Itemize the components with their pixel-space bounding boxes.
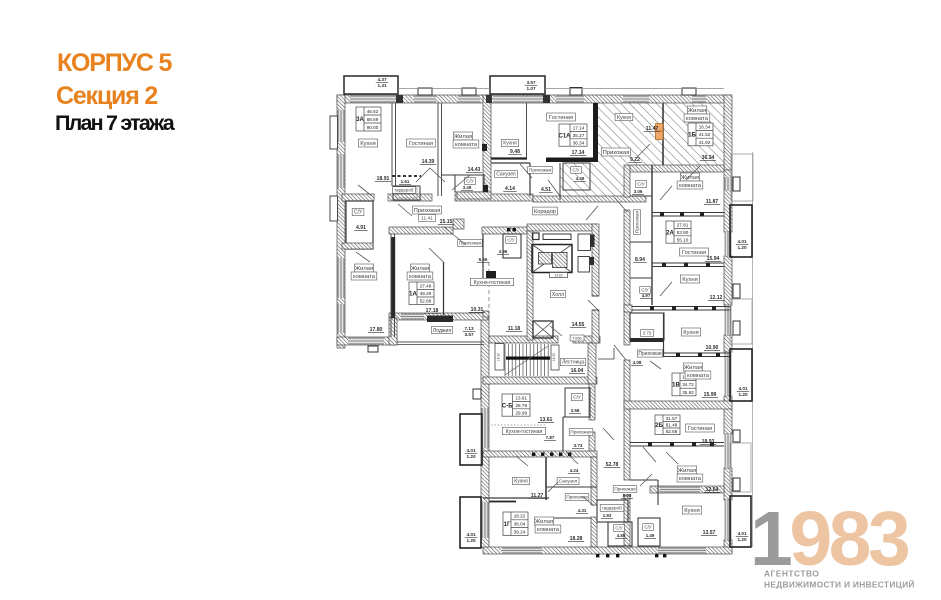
svg-text:НЕДВИЖИМОСТИ И ИНВЕСТИЦИЙ: НЕДВИЖИМОСТИ И ИНВЕСТИЦИЙ (764, 579, 915, 590)
svg-text:Жилая: Жилая (411, 266, 429, 272)
svg-text:комната: комната (537, 527, 560, 533)
svg-text:52.86: 52.86 (420, 299, 432, 304)
svg-text:4.49: 4.49 (576, 176, 585, 181)
svg-text:3А: 3А (356, 117, 364, 123)
svg-text:С/У: С/У (637, 182, 645, 187)
svg-text:Кухня: Кухня (684, 508, 700, 514)
svg-text:29.99: 29.99 (516, 410, 528, 415)
svg-text:1.20: 1.20 (466, 538, 476, 543)
svg-text:Секция 2: Секция 2 (56, 82, 157, 110)
svg-text:16.34: 16.34 (699, 125, 711, 130)
svg-text:комната: комната (686, 116, 709, 122)
svg-text:Коридор: Коридор (534, 209, 556, 215)
svg-text:17.14: 17.14 (573, 126, 585, 131)
svg-text:КОРПУС 5: КОРПУС 5 (57, 49, 172, 77)
svg-text:Кухня: Кухня (617, 115, 631, 121)
svg-text:3.96: 3.96 (499, 249, 508, 254)
svg-text:1.49: 1.49 (646, 533, 655, 538)
svg-text:С/У: С/У (573, 395, 582, 401)
svg-text:Кухня: Кухня (683, 330, 699, 336)
svg-text:Кухня: Кухня (503, 141, 517, 147)
svg-text:Гостиная: Гостиная (688, 426, 712, 432)
svg-text:Санузел: Санузел (496, 172, 516, 178)
svg-text:4.89: 4.89 (617, 533, 626, 538)
svg-text:4.01: 4.01 (737, 239, 747, 244)
svg-text:Прихожая: Прихожая (603, 150, 630, 156)
svg-text:комната: комната (455, 142, 478, 148)
svg-text:53.90: 53.90 (677, 230, 689, 235)
svg-text:Кухня-гостиная: Кухня-гостиная (474, 280, 511, 286)
svg-text:1.31: 1.31 (377, 83, 387, 88)
svg-text:3.75: 3.75 (643, 330, 652, 335)
svg-text:27.81: 27.81 (677, 223, 689, 228)
svg-text:1.20: 1.20 (738, 392, 748, 397)
svg-text:2Б: 2Б (655, 423, 663, 429)
svg-text:35.92: 35.92 (682, 390, 694, 395)
svg-text:Гостиная: Гостиная (549, 115, 573, 121)
svg-text:С/У: С/У (641, 287, 648, 292)
svg-text:38.04: 38.04 (514, 522, 526, 527)
svg-text:Санузел: Санузел (559, 479, 578, 485)
svg-text:1.20: 1.20 (466, 454, 476, 459)
svg-text:1В: 1В (672, 383, 680, 389)
svg-text:С/У: С/У (572, 167, 579, 172)
svg-text:Жилая: Жилая (355, 266, 373, 272)
svg-text:3.58: 3.58 (571, 408, 580, 413)
svg-text:6.66: 6.66 (479, 257, 488, 262)
svg-text:С/У: С/У (507, 237, 514, 242)
svg-text:41.52: 41.52 (699, 132, 711, 137)
svg-text:1.93: 1.93 (603, 513, 612, 518)
svg-text:62.68: 62.68 (666, 429, 678, 434)
svg-text:Холл: Холл (552, 292, 564, 298)
svg-text:1Б: 1Б (688, 133, 696, 139)
svg-text:4.01: 4.01 (737, 531, 747, 536)
svg-text:Кухня: Кухня (360, 141, 376, 147)
svg-text:Жилая: Жилая (535, 519, 553, 525)
svg-text:С/У: С/У (615, 525, 622, 530)
svg-text:Лестница: Лестница (562, 360, 584, 366)
svg-text:4.08: 4.08 (633, 360, 642, 365)
svg-text:3.57: 3.57 (526, 80, 536, 85)
svg-text:комната: комната (353, 274, 376, 280)
svg-text:Жилая: Жилая (688, 108, 706, 114)
svg-text:С1А: С1А (558, 133, 571, 139)
svg-text:8.03: 8.03 (623, 493, 632, 498)
svg-text:1А: 1А (409, 291, 417, 297)
svg-text:Прихожая: Прихожая (635, 210, 641, 233)
svg-text:комната: комната (687, 373, 710, 379)
svg-text:39.24: 39.24 (514, 529, 526, 534)
svg-text:комната: комната (679, 183, 702, 189)
svg-text:комната: комната (409, 274, 432, 280)
svg-text:1.07: 1.07 (526, 86, 536, 91)
svg-text:С-Б: С-Б (502, 403, 513, 409)
svg-text:14.30: 14.30 (552, 353, 556, 362)
svg-text:46.62: 46.62 (367, 109, 379, 114)
svg-text:Кухня: Кухня (682, 277, 698, 283)
svg-text:АГЕНТСТВО: АГЕНТСТВО (764, 569, 819, 579)
svg-text:35.27: 35.27 (573, 133, 585, 138)
svg-text:Жилая: Жилая (684, 365, 702, 371)
svg-text:3.06: 3.06 (634, 189, 643, 194)
svg-text:55.10: 55.10 (677, 237, 689, 242)
svg-text:Прихожая: Прихожая (638, 351, 661, 357)
svg-text:14.60: 14.60 (555, 273, 563, 277)
svg-text:Кухня: Кухня (514, 479, 528, 485)
svg-text:Лоджия: Лоджия (433, 328, 452, 334)
svg-text:27.49: 27.49 (420, 284, 432, 289)
svg-text:1.61: 1.61 (401, 179, 410, 184)
svg-text:Прихожая: Прихожая (570, 430, 592, 435)
svg-text:Жилая: Жилая (678, 468, 696, 474)
svg-text:90.00: 90.00 (367, 125, 379, 130)
svg-text:С/У: С/У (354, 210, 363, 216)
svg-text:гардероб: гардероб (395, 187, 414, 192)
svg-text:Т.06Б: Т.06Б (572, 336, 582, 340)
svg-text:4.01: 4.01 (738, 386, 748, 391)
svg-text:План 7 этажа: План 7 этажа (55, 111, 176, 135)
svg-text:Прихожая: Прихожая (614, 487, 636, 492)
svg-text:Прихожая: Прихожая (414, 208, 441, 214)
svg-text:С/У: С/У (466, 179, 474, 184)
svg-text:4.31: 4.31 (578, 508, 587, 513)
svg-text:61.48: 61.48 (666, 423, 678, 428)
svg-text:3.73: 3.73 (574, 443, 583, 448)
svg-text:Гостиная: Гостиная (682, 250, 706, 256)
svg-text:Прихожая: Прихожая (529, 168, 552, 174)
svg-text:4.37: 4.37 (377, 77, 387, 82)
svg-text:1Г: 1Г (504, 522, 511, 528)
svg-text:7.87: 7.87 (546, 435, 555, 440)
svg-text:4.97: 4.97 (642, 293, 651, 298)
svg-text:41.92: 41.92 (699, 140, 711, 145)
svg-text:3.49: 3.49 (463, 185, 472, 190)
svg-text:3.57: 3.57 (464, 332, 474, 337)
svg-text:36.34: 36.34 (573, 140, 585, 145)
svg-text:Гостиная: Гостиная (409, 141, 433, 147)
svg-text:Жилая: Жилая (454, 134, 472, 140)
svg-text:88.69: 88.69 (367, 117, 379, 122)
svg-text:4.01: 4.01 (466, 448, 476, 453)
svg-text:31.57: 31.57 (666, 416, 678, 421)
svg-text:2А: 2А (666, 230, 674, 236)
svg-text:7.13: 7.13 (464, 326, 474, 331)
svg-text:комната: комната (679, 476, 702, 482)
svg-text:18.22: 18.22 (514, 514, 526, 519)
svg-text:14.30: 14.30 (497, 353, 501, 362)
svg-text:гардероб: гардероб (602, 506, 622, 511)
svg-text:Кухня-гостиная: Кухня-гостиная (506, 429, 543, 435)
svg-text:13.61: 13.61 (516, 396, 528, 401)
svg-text:4.24: 4.24 (570, 468, 579, 473)
svg-text:4.01: 4.01 (466, 532, 476, 537)
svg-text:С/У: С/У (644, 524, 651, 529)
svg-text:34.72: 34.72 (682, 382, 694, 387)
svg-text:1.20: 1.20 (737, 537, 747, 542)
svg-text:28.79: 28.79 (516, 403, 528, 408)
svg-text:49.29: 49.29 (420, 291, 432, 296)
svg-text:11.41: 11.41 (421, 216, 433, 222)
svg-text:1.20: 1.20 (737, 245, 747, 250)
